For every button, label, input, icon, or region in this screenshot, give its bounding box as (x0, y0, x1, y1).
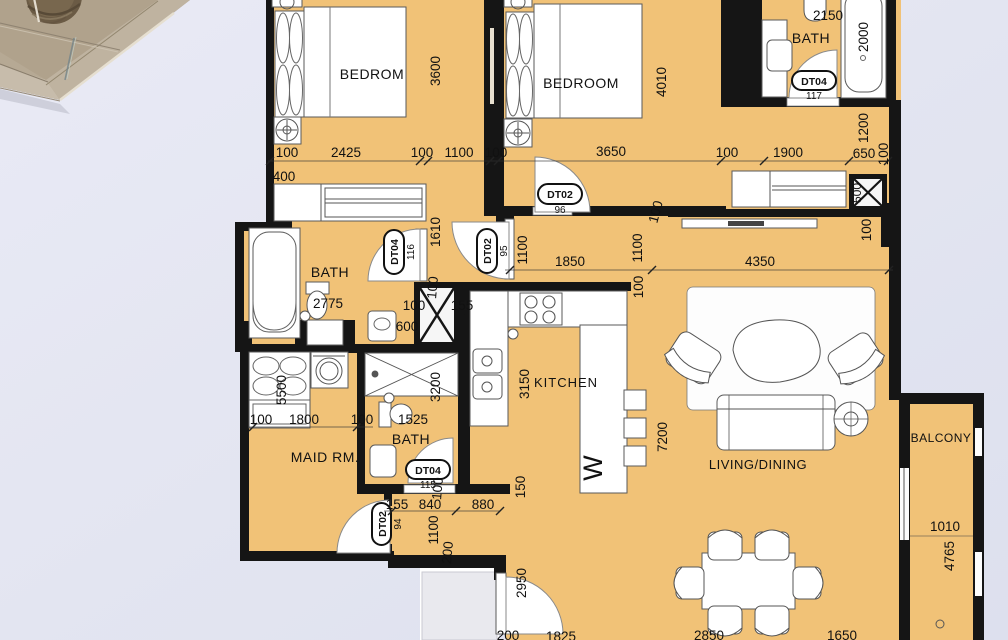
svg-text:1100: 1100 (515, 235, 530, 264)
svg-text:2850: 2850 (694, 628, 724, 640)
svg-text:100: 100 (716, 145, 739, 160)
svg-text:7200: 7200 (655, 422, 670, 452)
svg-text:2150: 2150 (813, 8, 843, 23)
svg-text:2000: 2000 (856, 22, 871, 52)
svg-text:200: 200 (439, 541, 456, 565)
svg-text:4765: 4765 (942, 541, 957, 571)
svg-text:100: 100 (411, 145, 434, 160)
svg-text:1100: 1100 (630, 233, 645, 262)
svg-text:1610: 1610 (428, 217, 443, 247)
svg-text:100: 100 (485, 145, 508, 160)
svg-text:4010: 4010 (654, 67, 669, 97)
svg-text:100: 100 (276, 145, 299, 160)
svg-text:3200: 3200 (428, 372, 443, 402)
svg-text:1010: 1010 (930, 519, 960, 534)
svg-text:3650: 3650 (596, 144, 626, 159)
svg-text:1800: 1800 (289, 412, 319, 427)
svg-text:2950: 2950 (514, 568, 529, 598)
svg-text:100: 100 (250, 412, 273, 427)
svg-text:600: 600 (396, 319, 419, 334)
svg-text:400: 400 (273, 169, 296, 184)
svg-text:155: 155 (386, 497, 409, 512)
svg-text:W: W (578, 455, 608, 481)
svg-text:117: 117 (806, 91, 822, 102)
svg-text:DT04: DT04 (415, 465, 441, 477)
svg-text:155: 155 (451, 298, 474, 313)
svg-text:150: 150 (513, 476, 528, 499)
svg-text:100: 100 (429, 477, 446, 501)
svg-text:1100: 1100 (426, 515, 441, 544)
svg-text:3600: 3600 (428, 56, 443, 86)
svg-text:5500: 5500 (274, 375, 289, 405)
svg-text:1650: 1650 (827, 628, 857, 640)
svg-text:1525: 1525 (398, 412, 428, 427)
svg-text:BATH: BATH (792, 30, 830, 46)
svg-text:100: 100 (351, 412, 374, 427)
svg-text:880: 880 (472, 497, 495, 512)
svg-text:100: 100 (424, 276, 441, 300)
svg-text:4350: 4350 (745, 254, 775, 269)
svg-text:100: 100 (403, 298, 426, 313)
svg-text:100: 100 (876, 143, 891, 166)
svg-text:MAID RM.: MAID RM. (291, 449, 360, 465)
svg-text:BALCONY: BALCONY (911, 431, 972, 445)
svg-text:BEDROOM: BEDROOM (543, 75, 619, 91)
svg-text:DT02: DT02 (377, 511, 389, 537)
svg-text:95: 95 (499, 245, 510, 257)
svg-text:2425: 2425 (331, 145, 361, 160)
svg-text:DT02: DT02 (482, 238, 494, 264)
svg-text:1825: 1825 (546, 629, 576, 640)
svg-text:LIVING/DINING: LIVING/DINING (709, 457, 807, 472)
svg-text:1100: 1100 (444, 145, 473, 160)
svg-text:BATH: BATH (311, 264, 349, 280)
svg-text:650: 650 (853, 146, 876, 161)
svg-text:DT04: DT04 (801, 76, 827, 88)
svg-text:BEDROM: BEDROM (340, 66, 404, 82)
svg-text:1200: 1200 (856, 113, 871, 143)
svg-text:94: 94 (393, 518, 404, 530)
svg-text:1900: 1900 (773, 145, 803, 160)
svg-text:DT02: DT02 (547, 189, 573, 201)
svg-text:KITCHEN: KITCHEN (534, 375, 598, 390)
svg-text:DT04: DT04 (389, 239, 401, 265)
svg-text:200: 200 (497, 628, 520, 640)
svg-text:500: 500 (850, 183, 864, 203)
svg-text:96: 96 (554, 205, 566, 216)
svg-text:100: 100 (631, 276, 646, 299)
svg-text:1850: 1850 (555, 254, 585, 269)
svg-text:116: 116 (406, 244, 417, 260)
svg-text:BATH: BATH (392, 431, 430, 447)
svg-text:2775: 2775 (313, 296, 343, 311)
svg-text:100: 100 (859, 219, 874, 242)
svg-text:3150: 3150 (517, 369, 532, 399)
